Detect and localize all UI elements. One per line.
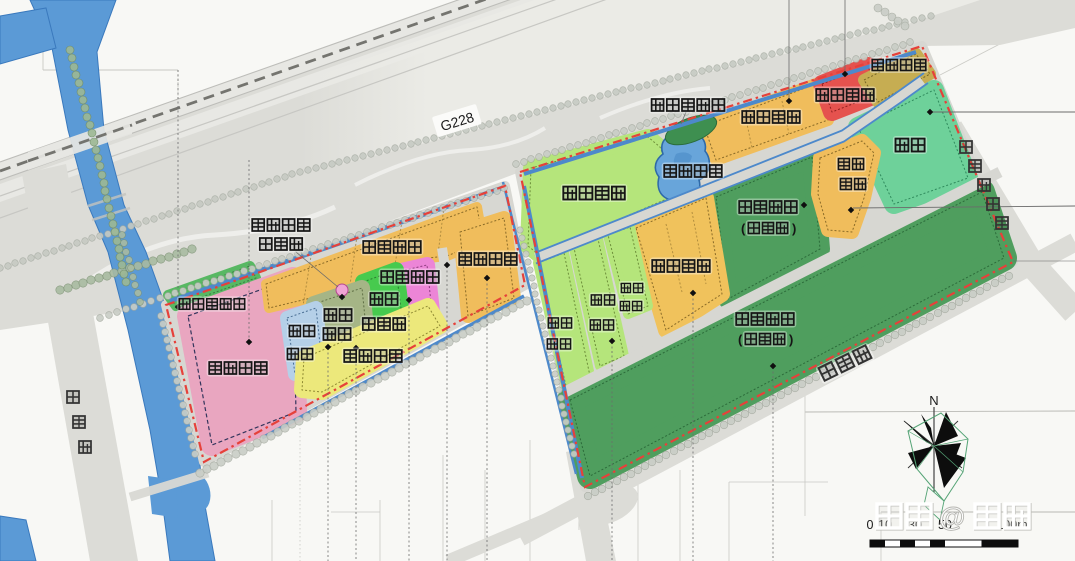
- svg-text:(: (: [738, 332, 743, 347]
- svg-text:N: N: [929, 393, 938, 408]
- svg-text:(: (: [741, 221, 746, 236]
- svg-text:0: 0: [867, 518, 874, 532]
- svg-text:): ): [792, 221, 796, 236]
- svg-text:@: @: [939, 502, 965, 532]
- svg-text:): ): [789, 332, 793, 347]
